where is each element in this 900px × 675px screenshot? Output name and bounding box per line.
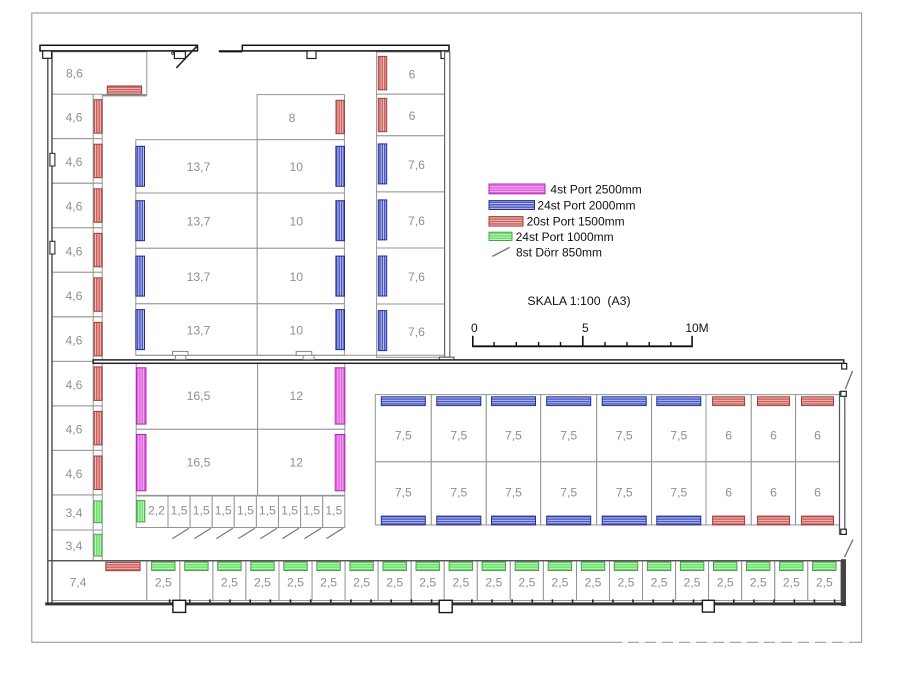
svg-text:6: 6 [725, 485, 732, 499]
svg-text:7,6: 7,6 [408, 214, 425, 228]
svg-text:6: 6 [814, 485, 821, 499]
svg-text:10: 10 [290, 270, 304, 284]
svg-text:4,6: 4,6 [66, 333, 83, 347]
svg-text:2,5: 2,5 [585, 576, 602, 590]
svg-text:2,5: 2,5 [618, 576, 635, 590]
svg-text:2,5: 2,5 [287, 576, 304, 590]
svg-text:6: 6 [409, 67, 416, 81]
svg-text:2,5: 2,5 [551, 576, 568, 590]
svg-text:2,5: 2,5 [783, 576, 800, 590]
svg-text:4,6: 4,6 [66, 289, 83, 303]
svg-text:8,6: 8,6 [66, 67, 83, 81]
svg-text:12: 12 [290, 389, 304, 403]
svg-text:2,5: 2,5 [518, 576, 535, 590]
svg-text:7,5: 7,5 [616, 485, 633, 499]
svg-text:7,5: 7,5 [670, 429, 687, 443]
svg-text:7,5: 7,5 [670, 485, 687, 499]
svg-text:2,5: 2,5 [717, 576, 734, 590]
svg-text:16,5: 16,5 [187, 389, 211, 403]
svg-text:3,4: 3,4 [66, 506, 83, 520]
svg-text:7,5: 7,5 [560, 429, 577, 443]
svg-text:2,5: 2,5 [419, 576, 436, 590]
svg-text:4,6: 4,6 [66, 467, 83, 481]
svg-text:12: 12 [290, 456, 304, 470]
svg-text:6: 6 [409, 109, 416, 123]
svg-text:6: 6 [725, 429, 732, 443]
svg-text:2,5: 2,5 [750, 576, 767, 590]
svg-text:7,5: 7,5 [616, 429, 633, 443]
svg-text:SKALA 1:100 (A3): SKALA 1:100 (A3) [527, 294, 630, 308]
svg-text:7,5: 7,5 [450, 485, 467, 499]
svg-text:2,5: 2,5 [320, 576, 337, 590]
svg-text:8: 8 [289, 111, 296, 125]
svg-text:20st Port 1500mm: 20st Port 1500mm [527, 215, 625, 229]
svg-text:7,5: 7,5 [505, 429, 522, 443]
svg-text:2,5: 2,5 [485, 576, 502, 590]
svg-text:1,5: 1,5 [215, 504, 232, 518]
svg-text:7,5: 7,5 [560, 485, 577, 499]
svg-text:1,5: 1,5 [237, 504, 254, 518]
svg-text:1,5: 1,5 [171, 504, 188, 518]
svg-text:2,5: 2,5 [452, 576, 469, 590]
svg-text:1,5: 1,5 [281, 504, 298, 518]
svg-text:6: 6 [770, 485, 777, 499]
svg-text:1,5: 1,5 [193, 504, 210, 518]
svg-text:2,5: 2,5 [386, 576, 403, 590]
svg-text:10: 10 [290, 215, 304, 229]
svg-text:7,5: 7,5 [450, 429, 467, 443]
svg-text:2,5: 2,5 [254, 576, 271, 590]
svg-text:6: 6 [770, 429, 777, 443]
svg-text:1,5: 1,5 [259, 504, 276, 518]
svg-text:13,7: 13,7 [187, 323, 211, 337]
svg-text:2,5: 2,5 [221, 576, 238, 590]
svg-text:2,5: 2,5 [155, 576, 172, 590]
svg-text:4,6: 4,6 [66, 200, 83, 214]
svg-text:7,5: 7,5 [395, 429, 412, 443]
svg-text:0: 0 [471, 321, 478, 335]
svg-text:7,4: 7,4 [70, 576, 87, 590]
svg-text:10M: 10M [685, 321, 708, 335]
svg-text:4,6: 4,6 [66, 244, 83, 258]
svg-text:4,6: 4,6 [66, 422, 83, 436]
svg-text:1,5: 1,5 [325, 504, 342, 518]
svg-text:5: 5 [582, 321, 589, 335]
svg-text:7,5: 7,5 [505, 485, 522, 499]
svg-text:7,6: 7,6 [408, 158, 425, 172]
svg-text:4,6: 4,6 [66, 111, 83, 125]
svg-text:3,4: 3,4 [66, 539, 83, 553]
svg-text:4,6: 4,6 [66, 155, 83, 169]
svg-text:7,6: 7,6 [408, 270, 425, 284]
svg-text:4st Port 2500mm: 4st Port 2500mm [550, 182, 641, 196]
svg-text:2,2: 2,2 [148, 504, 165, 518]
svg-text:2,5: 2,5 [684, 576, 701, 590]
svg-text:2,5: 2,5 [816, 576, 833, 590]
svg-text:4,6: 4,6 [66, 378, 83, 392]
svg-text:13,7: 13,7 [187, 215, 211, 229]
svg-text:24st Port 1000mm: 24st Port 1000mm [516, 230, 614, 244]
svg-text:13,7: 13,7 [187, 160, 211, 174]
svg-text:13,7: 13,7 [187, 270, 211, 284]
svg-text:24st Port 2000mm: 24st Port 2000mm [537, 198, 635, 212]
svg-text:8st Dörr 850mm: 8st Dörr 850mm [516, 245, 602, 259]
svg-text:6: 6 [814, 429, 821, 443]
svg-text:10: 10 [290, 160, 304, 174]
svg-text:16,5: 16,5 [187, 456, 211, 470]
svg-text:2,5: 2,5 [353, 576, 370, 590]
svg-text:2,5: 2,5 [651, 576, 668, 590]
svg-text:7,6: 7,6 [408, 325, 425, 339]
svg-text:7,5: 7,5 [395, 485, 412, 499]
svg-text:1,5: 1,5 [303, 504, 320, 518]
svg-text:10: 10 [290, 323, 304, 337]
